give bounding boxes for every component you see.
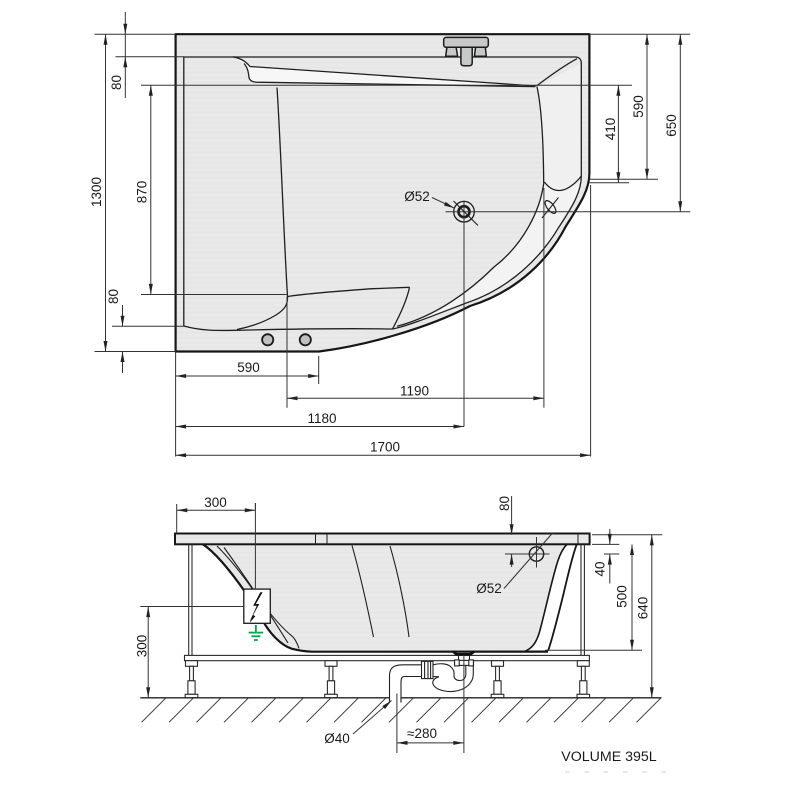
svg-text:300: 300 [135,635,150,658]
svg-text:590: 590 [237,360,260,375]
svg-text:Ø40: Ø40 [324,731,350,746]
svg-text:650: 650 [664,114,679,137]
svg-text:870: 870 [135,181,150,204]
svg-text:640: 640 [636,597,651,620]
svg-text:80: 80 [106,289,121,304]
svg-text:40: 40 [593,561,608,576]
svg-text:500: 500 [615,585,630,608]
svg-text:300: 300 [204,495,227,510]
svg-text:≈280: ≈280 [407,726,437,741]
svg-text:80: 80 [109,75,124,90]
svg-text:80: 80 [497,496,512,511]
svg-text:1180: 1180 [307,411,336,426]
svg-text:1190: 1190 [400,384,429,399]
svg-text:1300: 1300 [89,177,104,207]
svg-text:VOLUME 395L: VOLUME 395L [561,749,657,765]
svg-text:Ø52: Ø52 [404,189,430,204]
svg-text:Ø52: Ø52 [476,581,502,596]
svg-text:590: 590 [631,95,646,118]
svg-text:410: 410 [603,118,618,141]
svg-text:1700: 1700 [370,440,400,455]
